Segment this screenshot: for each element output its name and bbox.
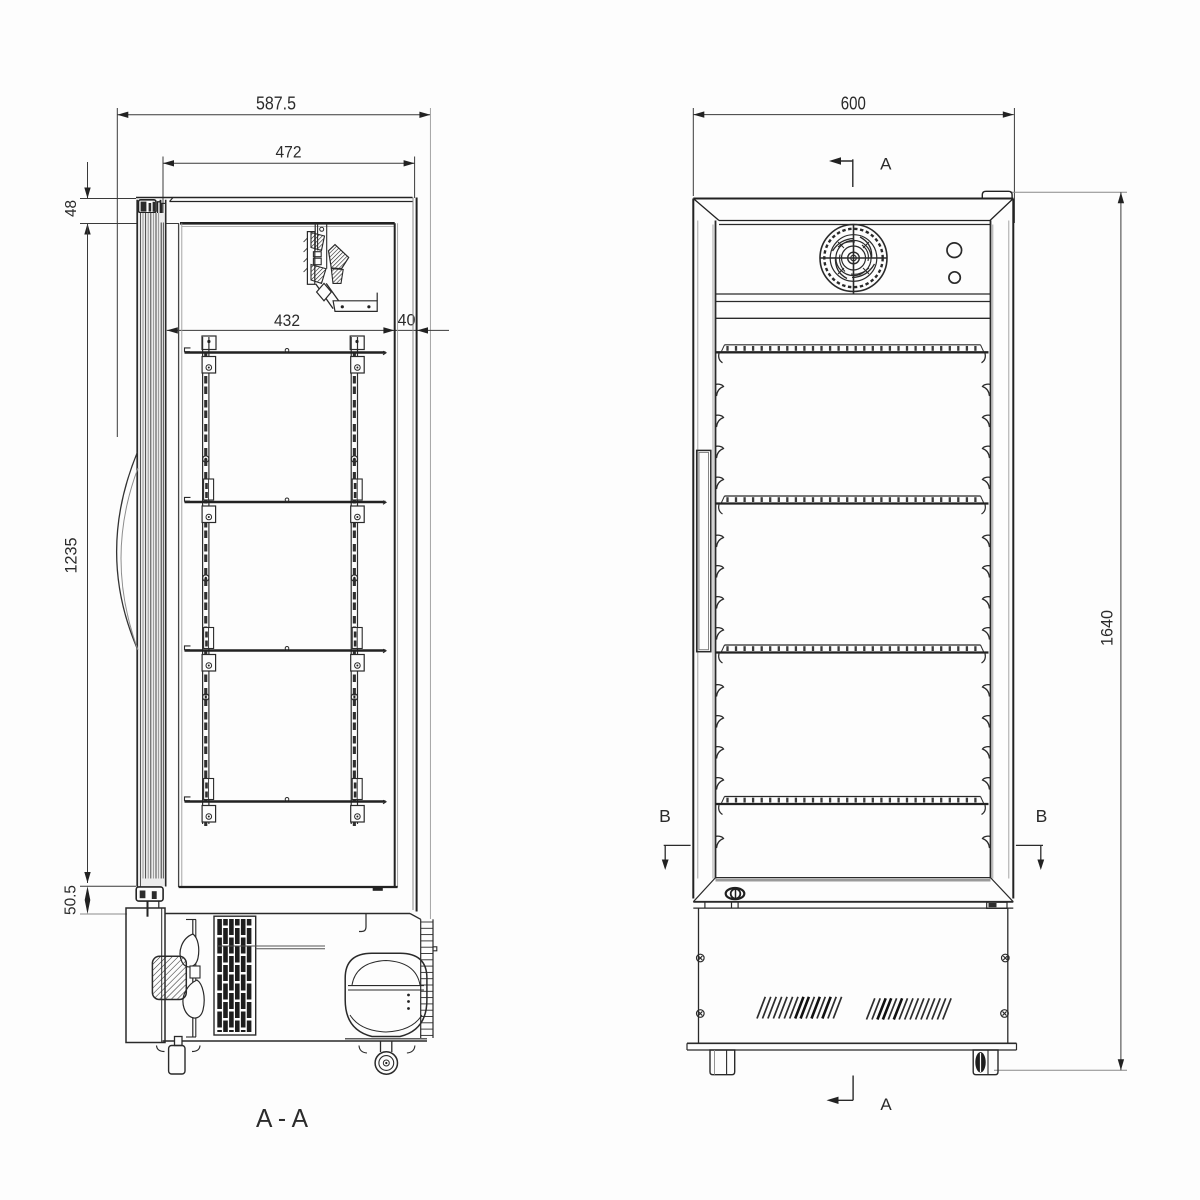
svg-text:B: B: [659, 806, 671, 826]
svg-text:472: 472: [276, 143, 302, 162]
svg-text:A - A: A - A: [256, 1103, 309, 1133]
svg-text:432: 432: [274, 311, 300, 330]
svg-text:50.5: 50.5: [63, 885, 80, 915]
svg-text:587.5: 587.5: [256, 94, 296, 114]
svg-text:600: 600: [841, 94, 866, 114]
svg-text:A: A: [880, 1095, 892, 1114]
svg-text:A: A: [880, 155, 892, 174]
svg-text:B: B: [1036, 806, 1048, 826]
svg-text:48: 48: [63, 200, 80, 217]
svg-text:1235: 1235: [62, 538, 81, 574]
svg-text:1640: 1640: [1097, 610, 1116, 646]
